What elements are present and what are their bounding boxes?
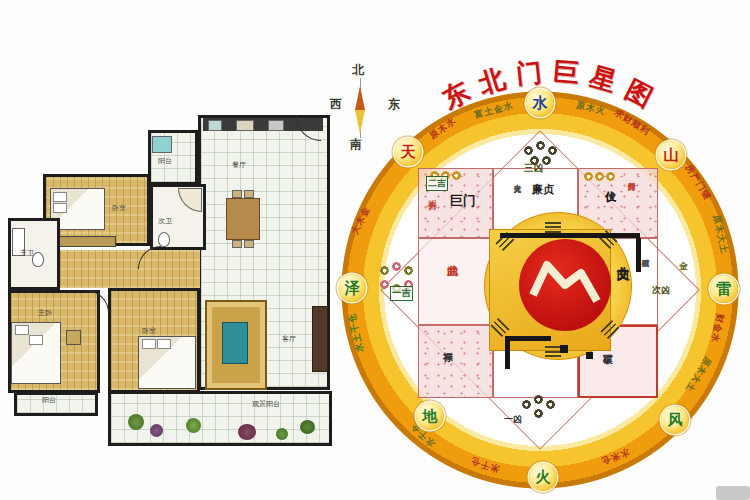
title-char: 星 bbox=[586, 59, 621, 100]
mini-compass-north-label: 北 bbox=[352, 62, 364, 79]
badge-mountain: 山 bbox=[657, 141, 685, 169]
badge-char: 水 bbox=[533, 96, 548, 111]
rating-label: 三凶 bbox=[524, 162, 543, 175]
rating-label: 二吉 bbox=[426, 176, 448, 191]
flower-icon bbox=[536, 141, 545, 150]
room-balcony-left bbox=[14, 392, 98, 416]
flower-icon bbox=[606, 172, 615, 181]
note-label: 破财惹祸 bbox=[640, 252, 648, 296]
plant-icon bbox=[276, 428, 288, 440]
plant-icon bbox=[238, 424, 256, 440]
rating-label: 次凶 bbox=[652, 284, 670, 297]
room-label: 阳台 bbox=[158, 158, 172, 165]
dining-table bbox=[226, 198, 260, 240]
flower-icon bbox=[380, 266, 389, 275]
flower-icon bbox=[380, 280, 389, 289]
room-label: 卧室 bbox=[142, 328, 156, 335]
star-pojun-label: 破军 bbox=[602, 346, 613, 374]
room-label: 卧室 bbox=[112, 205, 126, 212]
compass-needle-north-icon bbox=[355, 86, 365, 110]
badge-earth: 地 bbox=[416, 402, 444, 430]
room-label: 客厅 bbox=[282, 336, 296, 343]
title-char: 巨 bbox=[552, 54, 581, 91]
hob-icon bbox=[268, 120, 284, 131]
star-lianzhen-label: 廉贞 bbox=[532, 182, 554, 197]
range-icon bbox=[236, 120, 254, 131]
room-label: 主卫 bbox=[20, 250, 34, 257]
plant-icon bbox=[300, 420, 315, 434]
flower-icon bbox=[534, 409, 543, 418]
toilet-icon bbox=[158, 232, 170, 247]
stove-icon bbox=[208, 120, 222, 131]
room-label: 观景阳台 bbox=[252, 401, 280, 408]
overlay-wall bbox=[500, 233, 640, 238]
badge-water: 水 bbox=[526, 89, 554, 117]
flower-icon bbox=[595, 172, 604, 181]
tv-cabinet bbox=[312, 306, 328, 372]
star-lucun-label: 禄存 bbox=[442, 344, 453, 372]
badge-wind: 风 bbox=[661, 406, 689, 434]
room-label: 阳台 bbox=[42, 397, 56, 404]
note-label: 开门催财方 bbox=[626, 176, 634, 232]
bed-master bbox=[11, 322, 61, 384]
chair-icon bbox=[244, 190, 254, 198]
chair-icon bbox=[244, 240, 254, 248]
mini-compass-south-label: 南 bbox=[350, 136, 362, 153]
flower-icon bbox=[584, 172, 593, 181]
compass-needle-south-icon bbox=[355, 110, 365, 134]
overlay-wall bbox=[505, 336, 551, 341]
plant-icon bbox=[128, 414, 144, 430]
star-wenqu-label: 文曲 bbox=[616, 256, 630, 290]
note-label: 贵人升职 bbox=[428, 194, 437, 238]
badge-thunder: 雷 bbox=[710, 275, 738, 303]
flower-icon bbox=[392, 262, 401, 271]
flower-icon bbox=[534, 395, 543, 404]
hallway bbox=[60, 250, 200, 288]
badge-fire: 火 bbox=[529, 463, 557, 491]
star-fuwei-label: 伏位 bbox=[604, 182, 616, 212]
trigram-icon bbox=[545, 346, 561, 357]
badge-char: 泽 bbox=[345, 281, 360, 296]
sector-cell-sw bbox=[418, 325, 493, 398]
feng-shui-floorplan-image: 阳台 餐厅 卧室 次卫 主卫 主卧 卧室 客厅 阳台 观景阳台 北 西 东 南 … bbox=[0, 0, 750, 500]
flower-icon bbox=[542, 156, 551, 165]
rating-label: 一吉 bbox=[390, 286, 413, 301]
mini-compass-east-label: 东 bbox=[388, 96, 400, 113]
metal-icons-label: 金金金 bbox=[678, 254, 687, 292]
overlay-furniture bbox=[586, 352, 593, 359]
flower-icon bbox=[524, 146, 533, 155]
badge-char: 火 bbox=[536, 470, 551, 485]
room-label: 主卧 bbox=[38, 310, 52, 317]
flower-icon bbox=[546, 400, 555, 409]
trigram-icon bbox=[545, 222, 561, 233]
flower-icon bbox=[404, 266, 413, 275]
badge-heaven: 天 bbox=[394, 138, 422, 166]
flower-icon bbox=[522, 400, 531, 409]
overlay-furniture bbox=[560, 345, 568, 353]
star-jumen-label: 巨门 bbox=[450, 192, 476, 210]
badge-lake: 泽 bbox=[338, 274, 366, 302]
star-wuqu-label: 武曲 bbox=[446, 256, 458, 286]
badge-char: 地 bbox=[423, 409, 438, 424]
badge-char: 天 bbox=[401, 145, 416, 160]
bed-2 bbox=[138, 336, 196, 389]
mini-compass-west-label: 西 bbox=[330, 96, 342, 113]
note-label: 火灾血光 bbox=[512, 178, 520, 222]
watermark-box bbox=[716, 486, 750, 500]
sink-icon bbox=[152, 136, 172, 153]
badge-char: 风 bbox=[668, 413, 683, 428]
plant-icon bbox=[186, 418, 201, 433]
zigzag-line-icon bbox=[519, 239, 611, 331]
flower-icon bbox=[548, 146, 557, 155]
door-arc bbox=[86, 290, 109, 313]
badge-char: 雷 bbox=[717, 282, 732, 297]
coffee-table bbox=[222, 322, 248, 364]
title-char: 门 bbox=[514, 55, 544, 93]
rating-label: 一凶 bbox=[504, 413, 522, 426]
room-label: 餐厅 bbox=[232, 162, 246, 169]
chair-icon bbox=[232, 240, 242, 248]
nightstand bbox=[66, 330, 81, 345]
flower-icon bbox=[452, 171, 461, 180]
center-red-circle bbox=[519, 239, 611, 331]
chair-icon bbox=[232, 190, 242, 198]
wardrobe bbox=[52, 236, 116, 247]
plant-icon bbox=[150, 424, 163, 437]
badge-char: 山 bbox=[664, 148, 679, 163]
overlay-wall bbox=[505, 341, 510, 369]
room-label: 次卫 bbox=[158, 218, 172, 225]
